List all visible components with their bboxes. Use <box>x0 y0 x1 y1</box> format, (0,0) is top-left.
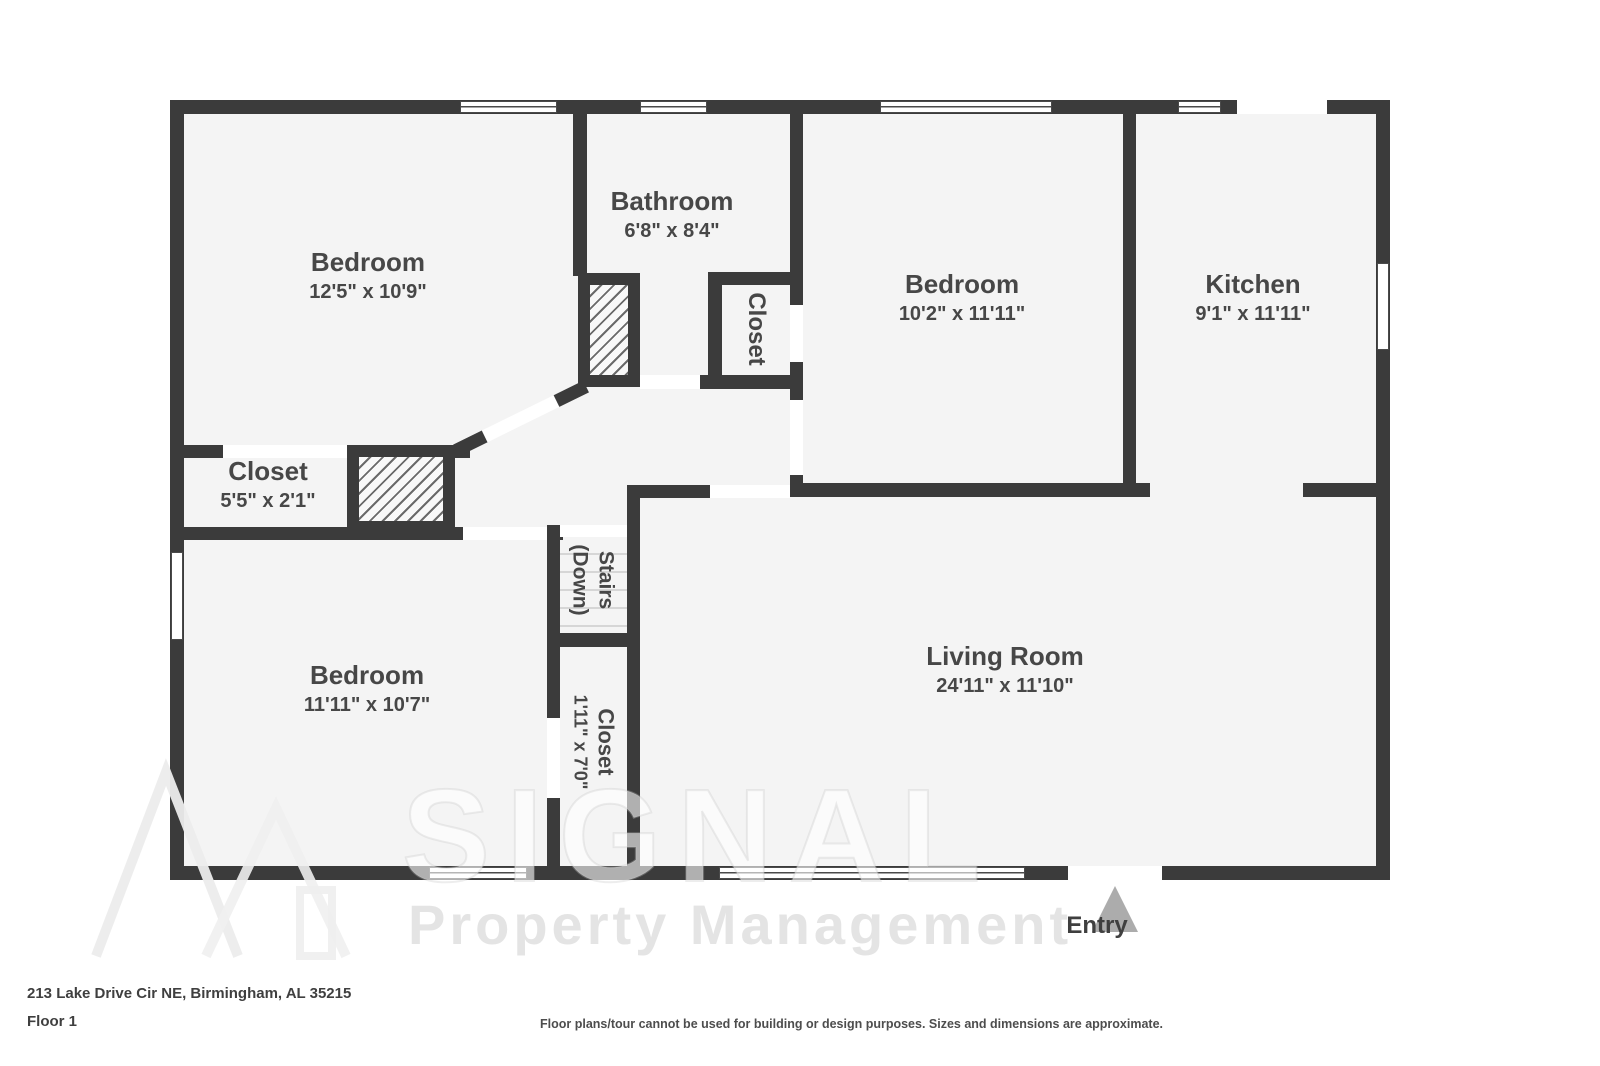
room-name: Closet <box>220 455 315 488</box>
window-bedroom2-top <box>880 101 1052 113</box>
room-name: Closet <box>741 292 771 365</box>
room-name: Stairs <box>592 544 618 615</box>
window-kitchen-right <box>1377 263 1389 350</box>
room-label-kitchen: Kitchen 9'1" x 11'11" <box>1195 268 1310 327</box>
floor-plan-page: SIGNAL Property Management Bedroom 12'5"… <box>0 0 1600 1066</box>
room-qualifier: (Down) <box>566 544 592 615</box>
room-name: Bedroom <box>309 246 426 279</box>
window-bedroom1-top <box>460 101 557 113</box>
window-bedroom3-left <box>171 552 183 640</box>
room-label-closet-left: Closet 5'5" x 2'1" <box>220 455 315 514</box>
property-address: 213 Lake Drive Cir NE, Birmingham, AL 35… <box>27 985 351 1002</box>
entry-label: Entry <box>1066 911 1127 941</box>
room-name: Kitchen <box>1195 268 1310 301</box>
hallway-livingroom-opening <box>710 485 790 498</box>
room-label-closet-bathroom: Closet <box>741 292 771 365</box>
kitchen-back-door-opening <box>1237 100 1327 114</box>
window-bathroom-top <box>640 101 707 113</box>
entry-text: Entry <box>1066 911 1127 941</box>
room-label-bedroom-top-middle: Bedroom 10'2" x 11'11" <box>899 268 1025 327</box>
room-dimensions: 10'2" x 11'11" <box>899 300 1025 326</box>
wall-kitchen-bottom-right <box>1303 483 1390 497</box>
floor-label: Floor 1 <box>27 1013 77 1030</box>
window-kitchen-top <box>1178 101 1221 113</box>
wall-bedroom2-bottom <box>790 483 1150 497</box>
room-label-living-room: Living Room 24'11" x 11'10" <box>926 640 1083 699</box>
room-label-stairs: Stairs (Down) <box>566 544 619 615</box>
chimney-hatch-upper <box>578 273 640 387</box>
stairs-entry-opening <box>560 525 627 537</box>
bedroom3-door-opening <box>463 527 547 540</box>
room-name: Living Room <box>926 640 1083 673</box>
watermark-brand: SIGNAL <box>402 760 997 911</box>
room-dimensions: 11'11" x 10'7" <box>304 691 430 717</box>
room-name: Closet <box>592 695 620 790</box>
room-dimensions: 1'11" x 7'0" <box>569 695 592 790</box>
wall-bathroom-closet-left <box>708 285 722 377</box>
room-label-bedroom-bottom-left: Bedroom 11'11" x 10'7" <box>304 659 430 718</box>
room-name: Bedroom <box>899 268 1025 301</box>
room-label-bedroom-top-left: Bedroom 12'5" x 10'9" <box>309 246 426 305</box>
wall-bathroom-bottom <box>708 272 793 285</box>
wall-bedroom2-kitchen <box>1123 114 1136 497</box>
watermark-logo-icon <box>88 750 398 965</box>
room-name: Bathroom <box>611 185 734 218</box>
bedroom2-door-opening <box>790 400 803 475</box>
bathroom-door-opening <box>640 375 700 389</box>
room-dimensions: 6'8" x 8'4" <box>611 217 734 243</box>
disclaimer-text: Floor plans/tour cannot be used for buil… <box>540 1017 1163 1031</box>
room-dimensions: 24'11" x 11'10" <box>926 672 1083 698</box>
chimney-hatch-lower <box>347 445 455 533</box>
room-dimensions: 12'5" x 10'9" <box>309 278 426 304</box>
entry-door-opening <box>1068 866 1162 880</box>
wall-bedroom1-bathroom <box>573 114 587 276</box>
room-dimensions: 5'5" x 2'1" <box>220 487 315 513</box>
room-label-bathroom: Bathroom 6'8" x 8'4" <box>611 185 734 244</box>
watermark-tagline: Property Management <box>408 892 1072 957</box>
wall-bathroom-closet-bottom <box>700 375 790 389</box>
bathroom-closet-door-opening <box>790 305 803 362</box>
room-dimensions: 9'1" x 11'11" <box>1195 300 1310 326</box>
room-label-closet-middle: Closet 1'11" x 7'0" <box>569 695 620 790</box>
room-name: Bedroom <box>304 659 430 692</box>
wall-stairs-closet-divider <box>547 633 640 647</box>
